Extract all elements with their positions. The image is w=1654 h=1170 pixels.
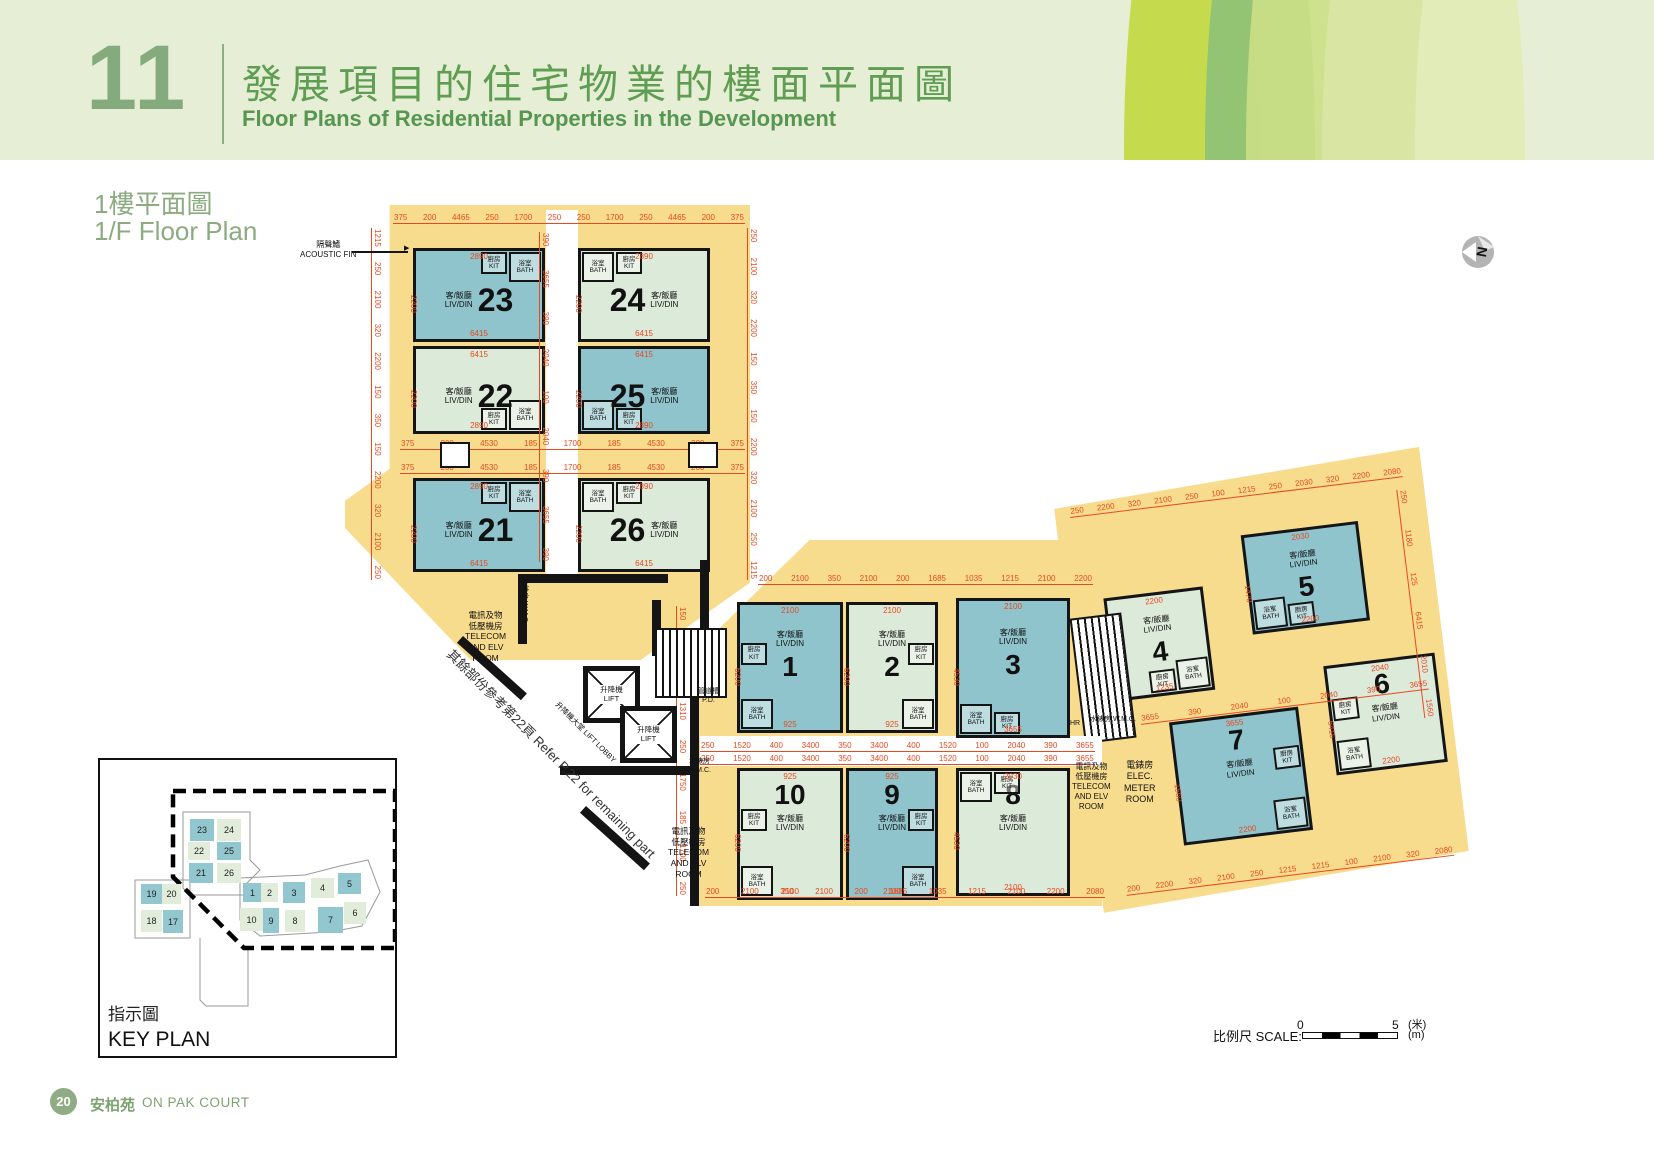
scale-label: 比例尺 SCALE: xyxy=(1213,1026,1302,1045)
dimension-value: 6415 xyxy=(1412,610,1423,631)
bathroom: 浴室BATH xyxy=(1336,737,1371,771)
dimension-value: 185 xyxy=(677,810,686,825)
livdin-label: 客/飯廳LIV/DIN xyxy=(1370,702,1400,724)
unit-25: 25客/飯廳LIV/DIN浴室BATH廚房KIT641528902200 xyxy=(578,346,710,434)
dimension-value: 2100 xyxy=(748,499,757,519)
dimension-value: 100 xyxy=(540,389,549,404)
dimension-value: 100 xyxy=(1210,489,1226,500)
dimension-strip: 2002100350210020016851035121521002200 xyxy=(758,575,1093,585)
dimension-value: 390 xyxy=(1187,707,1203,718)
wall-segment xyxy=(518,574,668,583)
kitchen: 廚房KIT xyxy=(908,809,934,831)
unit-24: 24客/飯廳LIV/DIN浴室BATH廚房KIT289064152200 xyxy=(578,248,710,342)
keyplan-unit-22: 22 xyxy=(188,842,210,860)
dimension-label: 2890 xyxy=(635,482,653,491)
dimension-label: 2200 xyxy=(1301,613,1320,624)
dimension-value: 1685 xyxy=(888,888,908,897)
dimension-value: 250 xyxy=(1267,482,1283,493)
keyplan-unit-7: 7 xyxy=(318,907,343,933)
dimension-label: 2200 xyxy=(409,390,418,408)
dimension-value: 390 xyxy=(1043,755,1058,764)
scale-unit-en: (m) xyxy=(1408,1029,1425,1041)
dimension-value: 100 xyxy=(1343,857,1359,868)
dimension-value: 200 xyxy=(1126,884,1142,895)
dimension-value: 100 xyxy=(1276,696,1292,707)
lift-shaft: 升降機LIFT xyxy=(620,706,677,763)
lift-label: 升降機LIFT xyxy=(635,725,662,744)
dimension-value: 2100 xyxy=(372,290,381,310)
keyplan-unit-9: 9 xyxy=(263,908,279,933)
dimension-value: 400 xyxy=(906,755,921,764)
dimension-value: 4530 xyxy=(479,440,499,449)
unit-number: 23 xyxy=(478,284,514,316)
unit-caption: 26客/飯廳LIV/DIN xyxy=(581,514,707,546)
dimension-label: 2890 xyxy=(470,252,488,261)
unit-10: 10客/飯廳LIV/DIN浴室BATH廚房KIT92521006200 xyxy=(737,768,843,900)
dimension-value: 3655 xyxy=(540,505,549,525)
bathroom: 浴室BATH xyxy=(582,252,614,282)
dimension-value: 185 xyxy=(607,464,622,473)
keyplan-unit-20: 20 xyxy=(162,884,181,904)
kitchen: 廚房KIT xyxy=(1273,745,1301,770)
unit-number: 24 xyxy=(610,284,646,316)
dimension-value: 250 xyxy=(372,565,381,580)
livdin-label: 客/飯廳LIV/DIN xyxy=(999,814,1027,832)
bathroom: 浴室BATH xyxy=(582,400,614,430)
keyplan-unit-10: 10 xyxy=(240,908,263,931)
dimension-value: 390 xyxy=(1366,685,1382,696)
dimension-value: 3655 xyxy=(1075,742,1095,751)
annotation: 水錶房 W.M.C. xyxy=(519,578,528,624)
keyplan-unit-6: 6 xyxy=(344,902,366,924)
dimension-label: 2100 xyxy=(883,606,901,615)
dimension-value: 1215 xyxy=(1236,485,1257,496)
dimension-label: 2890 xyxy=(635,421,653,430)
keyplan-unit-5: 5 xyxy=(338,873,361,894)
bathroom: 浴室BATH xyxy=(582,482,614,512)
bathroom: 浴室BATH xyxy=(1253,596,1288,630)
page-header: 11 發展項目的住宅物業的樓面平面圖 Floor Plans of Reside… xyxy=(0,0,1654,160)
bathroom: 浴室BATH xyxy=(1175,656,1210,690)
keyplan-unit-24: 24 xyxy=(217,819,241,841)
dimension-value: 1700 xyxy=(563,440,583,449)
dimension-value: 200 xyxy=(895,575,910,584)
unit-number: 3 xyxy=(1005,651,1021,679)
dimension-value: 1215 xyxy=(967,888,987,897)
annotation: HR xyxy=(1070,720,1080,729)
leaf-shape xyxy=(1415,0,1525,160)
dimension-value: 350 xyxy=(779,888,794,897)
dimension-value: 150 xyxy=(748,408,757,423)
annotation: ▶ xyxy=(404,245,409,254)
annotation: 隔聲鰭 ACOUSTIC FIN xyxy=(300,240,356,260)
dimension-value: 2010 xyxy=(1418,654,1429,675)
keyplan-unit-23: 23 xyxy=(190,819,214,841)
dimension-value: 125 xyxy=(1408,571,1419,587)
dimension-label: 2200 xyxy=(1382,755,1401,766)
dimension-value: 150 xyxy=(677,606,686,621)
bathroom: 浴室BATH xyxy=(509,482,541,512)
wall-segment xyxy=(352,251,408,253)
dimension-value: 400 xyxy=(769,742,784,751)
dimension-value: 2100 xyxy=(1037,575,1057,584)
dimension-value: 1685 xyxy=(927,575,947,584)
dimension-label: 6415 xyxy=(470,329,488,338)
dimension-value: 2080 xyxy=(1085,888,1105,897)
dimension-value: 185 xyxy=(523,464,538,473)
livdin-label: 客/飯廳LIV/DIN xyxy=(999,628,1027,646)
dimension-value: 390 xyxy=(540,547,549,562)
dimension-value: 2100 xyxy=(859,575,879,584)
livdin-label: 客/飯廳LIV/DIN xyxy=(1225,758,1255,780)
unit-7: 7客/飯廳LIV/DIN浴室BATH廚房KIT365522001560 xyxy=(1169,707,1313,846)
dimension-value: 320 xyxy=(372,503,381,518)
dimension-value: 2100 xyxy=(814,888,834,897)
dimension-value: 250 xyxy=(547,214,562,223)
page: 11 發展項目的住宅物業的樓面平面圖 Floor Plans of Reside… xyxy=(0,0,1654,1170)
livdin-label: 客/飯廳LIV/DIN xyxy=(650,521,678,539)
dimension-value: 2040 xyxy=(1006,755,1026,764)
dimension-value: 3400 xyxy=(801,755,821,764)
bathroom: 浴室BATH xyxy=(902,699,934,729)
dimension-value: 2040 xyxy=(1006,742,1026,751)
annotation: 電錶房 ELEC. METER ROOM xyxy=(1124,760,1156,805)
kitchen: 廚房KIT xyxy=(741,809,767,831)
dimension-value: 350 xyxy=(837,742,852,751)
dimension-value: 1180 xyxy=(1402,528,1413,548)
dimension-value: 390 xyxy=(540,232,549,247)
unit-22: 客/飯廳LIV/DIN22浴室BATH廚房KIT641528902200 xyxy=(413,346,545,434)
dimension-strip: 2502100320220015035015022003202100250121… xyxy=(747,228,757,580)
dimension-value: 1520 xyxy=(732,755,752,764)
dimension-value: 375 xyxy=(730,440,745,449)
key-plan: 2324222521261920181712345109876 指示圖 KEY … xyxy=(98,758,397,1058)
unit-number: 10 xyxy=(774,781,805,809)
lift-label: 升降機LIFT xyxy=(598,685,625,704)
dimension-label: 6200 xyxy=(733,668,742,686)
livdin-label: 客/飯廳LIV/DIN xyxy=(445,521,473,539)
dimension-label: 925 xyxy=(783,720,796,729)
livdin-label: 客/飯廳LIV/DIN xyxy=(445,387,473,405)
dimension-value: 400 xyxy=(906,742,921,751)
keyplan-unit-18: 18 xyxy=(141,910,162,932)
dimension-value: 2200 xyxy=(1351,471,1372,482)
header-divider xyxy=(222,44,224,144)
bathroom: 浴室BATH xyxy=(1273,796,1308,830)
dimension-value: 2100 xyxy=(740,888,760,897)
dimension-value: 320 xyxy=(1187,877,1203,888)
annotation: 管道槽 P.D. xyxy=(698,688,719,706)
dimension-label: 2890 xyxy=(470,421,488,430)
scale-start: 0 xyxy=(1297,1018,1304,1032)
unit-caption: 客/飯廳LIV/DIN21 xyxy=(416,514,542,546)
dimension-value: 185 xyxy=(607,440,622,449)
dimension-value: 3655 xyxy=(540,269,549,289)
unit-caption: 24客/飯廳LIV/DIN xyxy=(581,284,707,316)
unit-number: 1 xyxy=(782,653,798,681)
dimension-value: 185 xyxy=(523,440,538,449)
dimension-value: 2200 xyxy=(1096,502,1117,513)
dimension-label: 6415 xyxy=(635,329,653,338)
dimension-value: 200 xyxy=(854,888,869,897)
key-plan-title-zh: 指示圖 xyxy=(108,1000,159,1025)
dimension-label: 1235 xyxy=(1155,682,1174,693)
livdin-label: 客/飯廳LIV/DIN xyxy=(445,291,473,309)
dimension-value: 250 xyxy=(748,532,757,547)
dimension-value: 1700 xyxy=(563,464,583,473)
dimension-strip: 2501520400340035034004001520100204039036… xyxy=(700,742,1095,752)
livdin-label: 客/飯廳LIV/DIN xyxy=(1288,548,1318,570)
dimension-value: 350 xyxy=(827,575,842,584)
dimension-label: 2200 xyxy=(409,525,418,543)
kitchen: 廚房KIT xyxy=(908,643,934,665)
dimension-value: 100 xyxy=(974,755,989,764)
unit-1: 客/飯廳LIV/DIN1浴室BATH廚房KIT21009256200 xyxy=(737,602,843,733)
dimension-value: 2100 xyxy=(372,532,381,552)
dimension-value: 100 xyxy=(974,742,989,751)
dimension-value: 1310 xyxy=(677,701,686,721)
dimension-value: 1035 xyxy=(964,575,984,584)
unit-caption: 客/飯廳LIV/DIN23 xyxy=(416,284,542,316)
keyplan-unit-4: 4 xyxy=(311,878,334,898)
dimension-value: 390 xyxy=(540,311,549,326)
dimension-value: 3400 xyxy=(801,742,821,751)
dimension-label: 2030 xyxy=(1291,531,1310,542)
dimension-value: 1215 xyxy=(748,560,757,580)
dimension-value: 2200 xyxy=(1073,575,1093,584)
bathroom: 浴室BATH xyxy=(960,772,992,802)
bathroom: 浴室BATH xyxy=(741,699,773,729)
dimension-value: 200 xyxy=(422,214,437,223)
dimension-value: 150 xyxy=(372,384,381,399)
annotation: 水錶房 W.M.C. xyxy=(1090,716,1136,725)
dimension-value: 200 xyxy=(758,575,773,584)
dimension-label: 2890 xyxy=(470,482,488,491)
dimension-value: 1215 xyxy=(1310,861,1331,872)
dimension-label: 2200 xyxy=(574,525,583,543)
dimension-value: 3400 xyxy=(869,755,889,764)
livdin-label: 客/飯廳LIV/DIN xyxy=(650,291,678,309)
dimension-value: 320 xyxy=(748,470,757,485)
keyplan-unit-2: 2 xyxy=(261,883,278,902)
dimension-value: 320 xyxy=(372,323,381,338)
page-number-badge: 20 xyxy=(50,1088,77,1115)
dimension-value: 320 xyxy=(1405,850,1421,861)
dimension-label: 6415 xyxy=(635,559,653,568)
keyplan-unit-3: 3 xyxy=(283,882,305,903)
dimension-value: 250 xyxy=(677,739,686,754)
dimension-value: 200 xyxy=(705,888,720,897)
dimension-label: 4530 xyxy=(952,832,961,850)
unit-number: 21 xyxy=(478,514,514,546)
bathroom: 浴室BATH xyxy=(509,400,541,430)
building-wing: 客/飯廳LIV/DIN4浴室BATH廚房KIT220012352890客/飯廳L… xyxy=(1052,447,1471,913)
keyplan-unit-25: 25 xyxy=(217,842,241,860)
unit-number: 26 xyxy=(610,514,646,546)
dimension-label: 925 xyxy=(885,772,898,781)
dimension-strip: 3903655390204010020403903655390 xyxy=(539,232,549,562)
dimension-value: 2100 xyxy=(1372,853,1393,864)
dimension-value: 1215 xyxy=(372,228,381,248)
dimension-value: 1215 xyxy=(1277,865,1298,876)
dimension-value: 1560 xyxy=(1423,697,1434,718)
dimension-value: 2100 xyxy=(1006,888,1026,897)
dimension-value: 320 xyxy=(748,290,757,305)
unit-2: 客/飯廳LIV/DIN2浴室BATH廚房KIT21009256200 xyxy=(846,602,938,733)
dimension-value: 350 xyxy=(748,380,757,395)
page-title-zh: 發展項目的住宅物業的樓面平面圖 xyxy=(242,52,962,110)
dimension-value: 3655 xyxy=(1140,713,1161,724)
section-number: 11 xyxy=(86,26,187,131)
dimension-label: 925 xyxy=(783,772,796,781)
keyplan-unit-19: 19 xyxy=(141,884,162,904)
unit-number: 9 xyxy=(884,781,900,809)
dimension-value: 2030 xyxy=(1294,478,1315,489)
dimension-value: 2100 xyxy=(790,575,810,584)
livdin-label: 客/飯廳LIV/DIN xyxy=(776,630,804,648)
dimension-value: 350 xyxy=(837,755,852,764)
dimension-label: 2200 xyxy=(1238,824,1257,835)
dimension-value: 250 xyxy=(576,214,591,223)
dimension-value: 250 xyxy=(484,214,499,223)
dimension-value: 250 xyxy=(1249,869,1265,880)
dimension-value: 2100 xyxy=(1153,495,1174,506)
dimension-value: 250 xyxy=(1184,492,1200,503)
keyplan-unit-8: 8 xyxy=(285,910,305,932)
annotation: 電訊及物 低壓機房 TELECOM AND ELV ROOM xyxy=(1072,762,1111,812)
scale-bar xyxy=(1302,1032,1398,1039)
dimension-value: 1520 xyxy=(938,742,958,751)
dimension-value: 1700 xyxy=(605,214,625,223)
page-title-en: Floor Plans of Residential Properties in… xyxy=(242,106,836,132)
dimension-value: 2040 xyxy=(540,348,549,368)
dimension-value: 3400 xyxy=(869,742,889,751)
dimension-value: 350 xyxy=(372,413,381,428)
dimension-value: 390 xyxy=(1043,742,1058,751)
dimension-value: 2080 xyxy=(1433,846,1454,857)
unit-9: 9客/飯廳LIV/DIN浴室BATH廚房KIT92521006200 xyxy=(846,768,938,900)
dimension-label: 6415 xyxy=(635,350,653,359)
dimension-value: 2200 xyxy=(1046,888,1066,897)
window-box xyxy=(688,442,718,468)
dimension-value: 4465 xyxy=(451,214,471,223)
dimension-value: 2040 xyxy=(1319,691,1340,702)
dimension-label: 2100 xyxy=(1004,602,1022,611)
footer-name-zh: 安柏苑 xyxy=(90,1094,135,1115)
dimension-value: 4465 xyxy=(667,214,687,223)
unit-26: 26客/飯廳LIV/DIN浴室BATH廚房KIT289064152200 xyxy=(578,478,710,572)
dimension-label: 2200 xyxy=(574,390,583,408)
dimension-value: 250 xyxy=(372,261,381,276)
plan-title-en: 1/F Floor Plan xyxy=(94,216,257,247)
dimension-label: 2890 xyxy=(635,252,653,261)
annotation: 水錶房 W.M.C. xyxy=(688,758,711,776)
keyplan-unit-26: 26 xyxy=(217,863,241,883)
unit-21: 客/飯廳LIV/DIN21浴室BATH廚房KIT289064152200 xyxy=(413,478,545,572)
dimension-value: 2100 xyxy=(748,257,757,277)
unit-5: 客/飯廳LIV/DIN5浴室BATH廚房KIT203022001470 xyxy=(1241,521,1370,635)
dimension-value: 1035 xyxy=(928,888,948,897)
dimension-strip: 3752004465250170025025017002504465200375 xyxy=(393,214,745,224)
dimension-label: 2030 xyxy=(1004,772,1022,781)
dimension-label: 6415 xyxy=(470,350,488,359)
window-box xyxy=(440,442,470,468)
dimension-value: 150 xyxy=(748,351,757,366)
unit-3: 客/飯廳LIV/DIN3浴室BATH廚房KIT210036554530 xyxy=(956,598,1070,738)
keyplan-unit-21: 21 xyxy=(189,863,213,883)
dimension-value: 2200 xyxy=(1154,880,1175,891)
unit-number: 2 xyxy=(884,653,900,681)
dimension-value: 1520 xyxy=(938,755,958,764)
dimension-value: 2040 xyxy=(1229,702,1250,713)
dimension-value: 4530 xyxy=(646,464,666,473)
keyplan-unit-1: 1 xyxy=(243,883,262,902)
dimension-strip: 2002100350210020016851035121521002200208… xyxy=(705,888,1105,898)
dimension-value: 375 xyxy=(393,214,408,223)
dimension-value: 320 xyxy=(1126,499,1142,510)
dimension-value: 250 xyxy=(1398,489,1409,505)
scale-end: 5 xyxy=(1392,1018,1399,1032)
north-arrow-icon: N xyxy=(1460,234,1496,270)
dimension-strip: 1215250210032022001503501502200320210025… xyxy=(371,228,381,580)
dimension-value: 375 xyxy=(730,464,745,473)
dimension-value: 1700 xyxy=(513,214,533,223)
unit-8: 8客/飯廳LIV/DIN浴室BATH廚房KIT203021004530 xyxy=(956,768,1070,896)
dimension-value: 320 xyxy=(1325,475,1341,486)
unit-23: 客/飯廳LIV/DIN23浴室BATH廚房KIT289064152200 xyxy=(413,248,545,342)
dimension-label: 2200 xyxy=(574,295,583,313)
dimension-label: 6200 xyxy=(842,834,851,852)
dimension-value: 2200 xyxy=(372,351,381,371)
dimension-value: 250 xyxy=(1069,506,1085,517)
unit-number: 7 xyxy=(1227,726,1246,756)
dimension-value: 2200 xyxy=(748,318,757,338)
dimension-value: 2100 xyxy=(1216,872,1237,883)
dimension-label: 925 xyxy=(885,720,898,729)
dimension-label: 2100 xyxy=(781,606,799,615)
livdin-label: 客/飯廳LIV/DIN xyxy=(878,814,906,832)
unit-caption: 客/飯廳LIV/DIN3 xyxy=(959,628,1067,679)
unit-number: 5 xyxy=(1297,572,1316,602)
annotation: 電訊及物 低壓機房 TELECOM AND ELV ROOM xyxy=(465,610,506,663)
dimension-value: 1215 xyxy=(1000,575,1020,584)
kitchen: 廚房KIT xyxy=(741,643,767,665)
dimension-strip: 2501520400340035034004001520100204039036… xyxy=(700,755,1095,765)
livdin-label: 客/飯廳LIV/DIN xyxy=(878,630,906,648)
bathroom: 浴室BATH xyxy=(509,252,541,282)
unit-number: 4 xyxy=(1151,637,1170,667)
dimension-value: 375 xyxy=(730,214,745,223)
dimension-value: 375 xyxy=(400,440,415,449)
dimension-value: 250 xyxy=(700,742,715,751)
key-plan-title-en: KEY PLAN xyxy=(108,1028,210,1052)
dimension-value: 4530 xyxy=(646,440,666,449)
dimension-value: 1750 xyxy=(677,772,686,792)
dimension-value: 4530 xyxy=(479,464,499,473)
dimension-label: 6415 xyxy=(470,559,488,568)
dimension-value: 250 xyxy=(638,214,653,223)
dimension-value: 150 xyxy=(372,441,381,456)
livdin-label: 客/飯廳LIV/DIN xyxy=(650,387,678,405)
dimension-label: 1560 xyxy=(1173,783,1184,802)
keyplan-unit-17: 17 xyxy=(163,910,183,933)
bathroom: 浴室BATH xyxy=(960,704,992,734)
dimension-value: 1520 xyxy=(732,742,752,751)
dimension-label: 3655 xyxy=(1004,725,1022,734)
dimension-label: 2200 xyxy=(1145,595,1164,606)
dimension-value: 2080 xyxy=(1382,467,1403,478)
footer-name-en: ON PAK COURT xyxy=(142,1095,250,1110)
